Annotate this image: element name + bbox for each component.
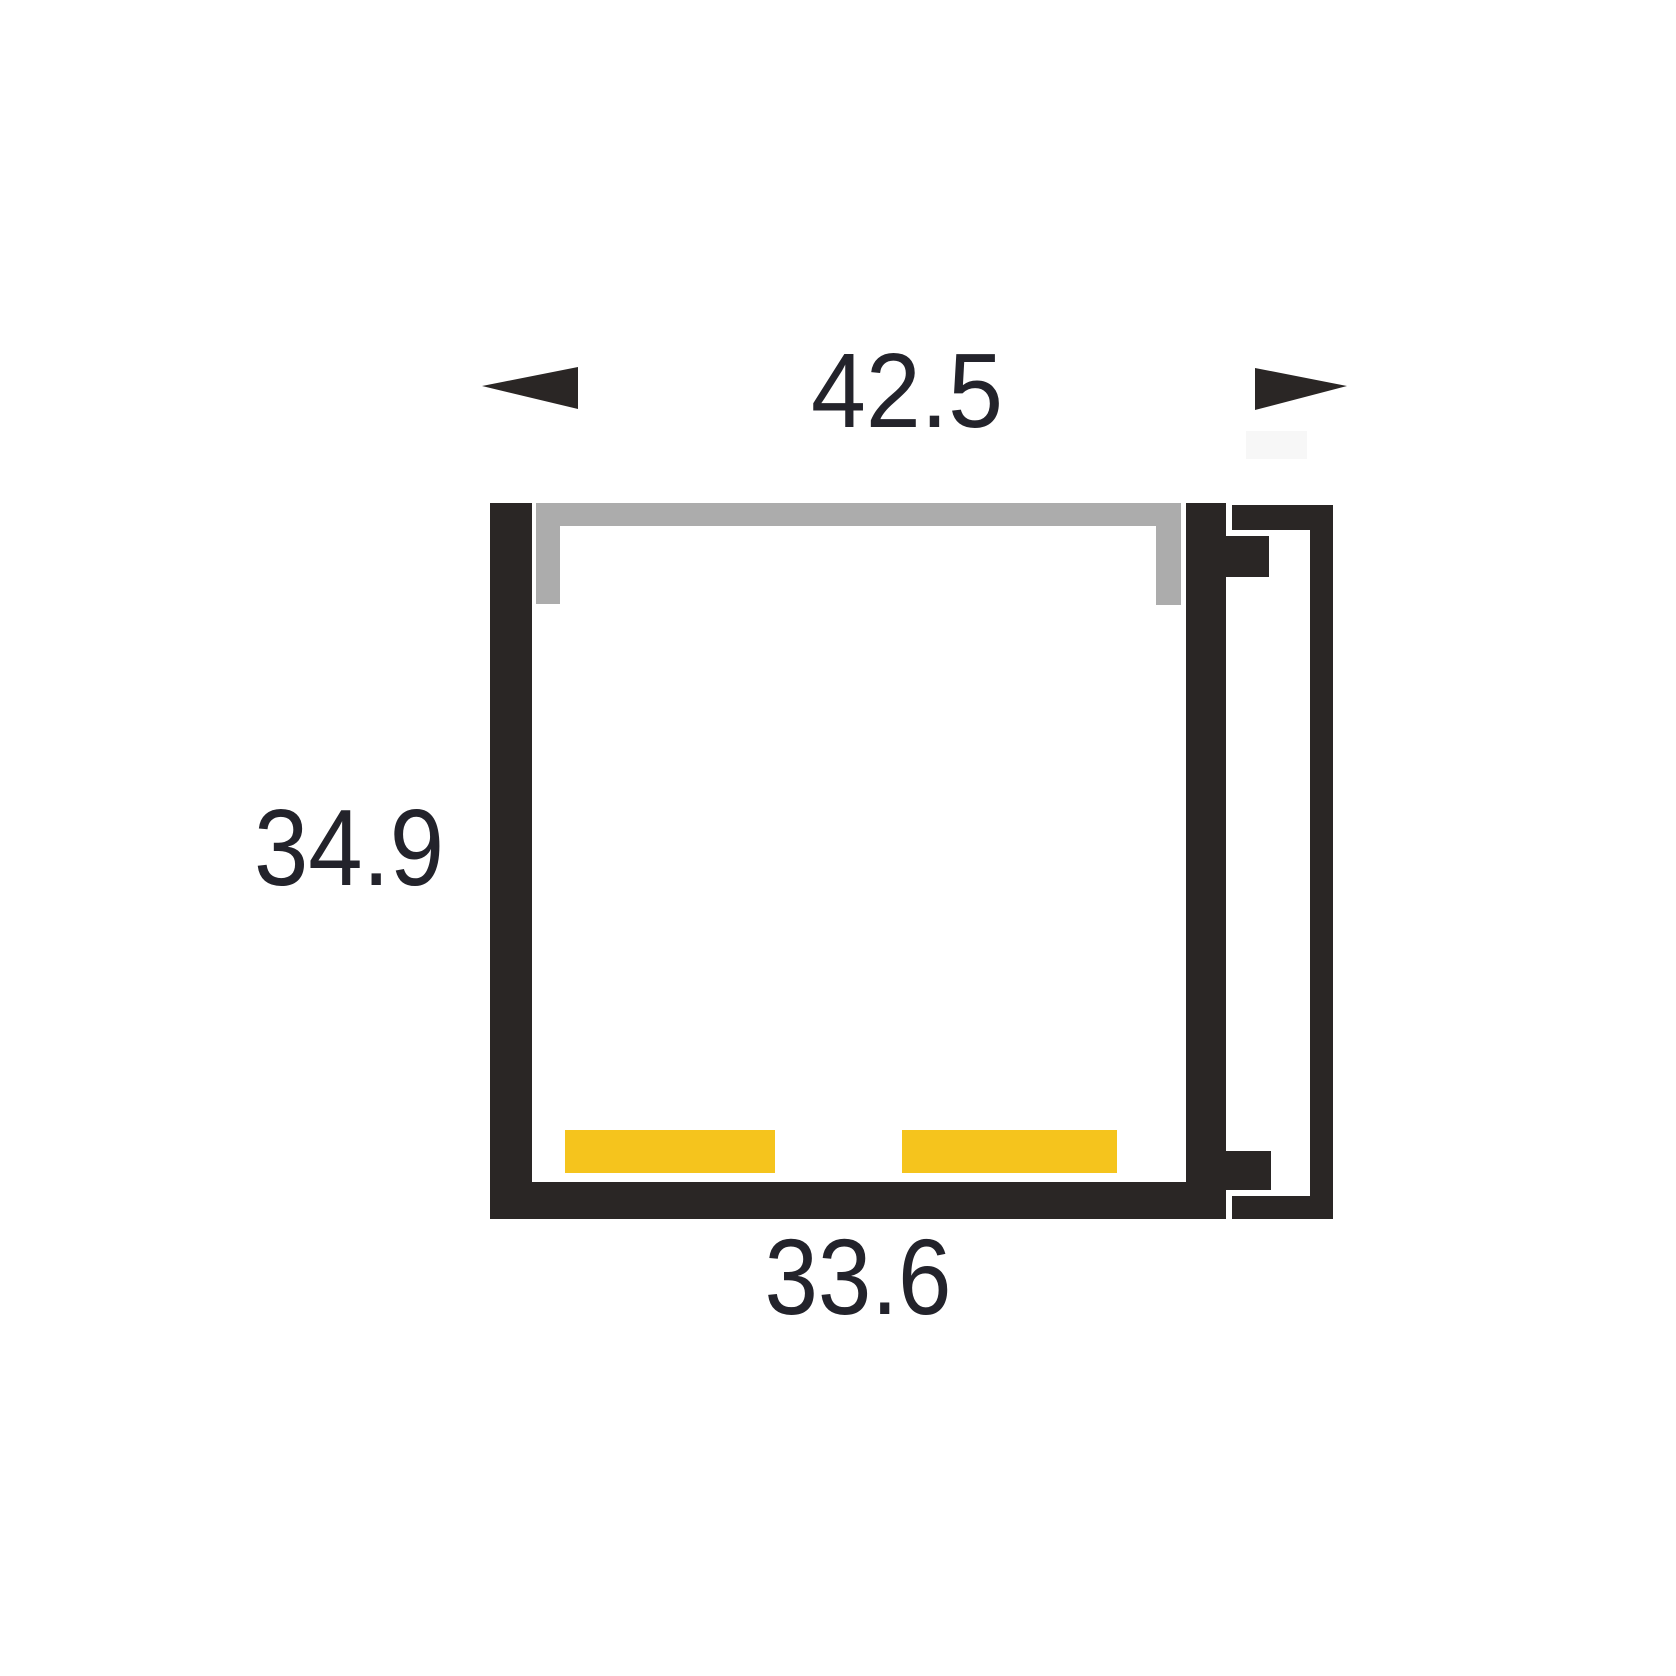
- svg-text:33.6: 33.6: [765, 1216, 952, 1337]
- svg-text:34.9: 34.9: [254, 787, 444, 909]
- svg-text:42.5: 42.5: [811, 332, 1003, 450]
